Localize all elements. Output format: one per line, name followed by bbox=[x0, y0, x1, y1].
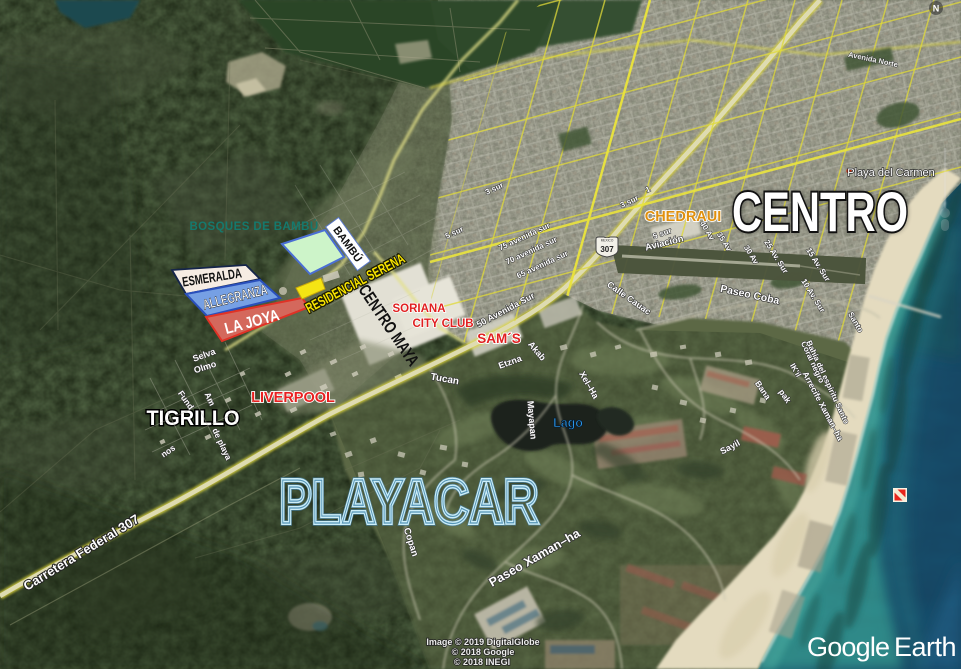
svg-text:307: 307 bbox=[600, 245, 614, 254]
svg-text:SAM´S: SAM´S bbox=[477, 331, 521, 346]
svg-text:SORIANA: SORIANA bbox=[392, 303, 445, 315]
svg-text:© 2018 INEGI: © 2018 INEGI bbox=[454, 657, 510, 667]
svg-text:TIGRILLO: TIGRILLO bbox=[147, 407, 240, 430]
svg-text:BOSQUES DE BAMBÚ: BOSQUES DE BAMBÚ bbox=[189, 220, 318, 233]
svg-text:N: N bbox=[933, 4, 940, 14]
svg-text:MEXICO: MEXICO bbox=[601, 239, 614, 243]
svg-text:LIVERPOOL: LIVERPOOL bbox=[251, 390, 335, 406]
svg-text:Playa del Carmen: Playa del Carmen bbox=[847, 167, 934, 179]
svg-text:CITY CLUB: CITY CLUB bbox=[412, 318, 473, 330]
svg-text:CENTRO: CENTRO bbox=[732, 180, 908, 243]
svg-text:© 2018 Google: © 2018 Google bbox=[452, 647, 515, 657]
svg-text:Image © 2019 DigitalGlobe: Image © 2019 DigitalGlobe bbox=[426, 637, 539, 647]
svg-text:CHEDRAUI: CHEDRAUI bbox=[645, 209, 722, 225]
svg-text:Lago: Lago bbox=[553, 416, 583, 430]
svg-text:Google: Google bbox=[807, 632, 889, 662]
svg-text:Earth: Earth bbox=[894, 632, 956, 662]
